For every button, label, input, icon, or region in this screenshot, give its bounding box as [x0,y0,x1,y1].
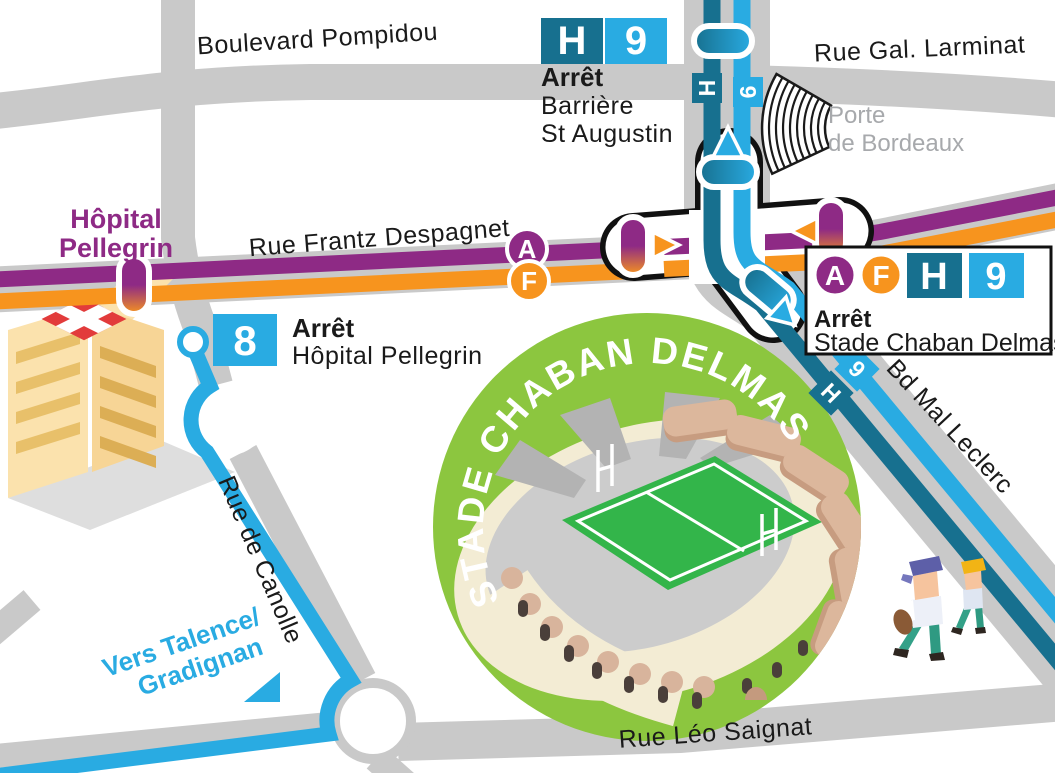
street-boulevard-pompidou: Boulevard Pompidou [196,18,438,61]
stop-name-line1: Barrière [541,92,634,120]
svg-text:H: H [920,256,947,298]
stop-label: Arrêt [292,313,354,343]
stop-marker-pellegrin[interactable] [119,256,149,314]
svg-text:F: F [872,260,889,291]
stop-info-chaban[interactable]: A F H 9 Arrêt Stade Chaban Delmas [806,247,1055,357]
roundabout-large [335,683,411,759]
label-porte-de-bordeaux-2: de Bordeaux [828,130,964,157]
map-svg: STADE CHABAN DELMAS H [0,0,1055,773]
label-hopital-2: Pellegrin [59,233,173,263]
transit-map: STADE CHABAN DELMAS H [0,0,1055,773]
svg-text:F: F [521,266,537,296]
svg-text:H: H [694,80,720,97]
stop-name: Stade Chaban Delmas [814,329,1055,357]
label-hopital-1: Hôpital [70,204,162,234]
line-8-terminus-marker[interactable] [180,329,206,355]
stop-marker-chaban-north[interactable] [699,157,757,187]
svg-text:9: 9 [985,256,1006,298]
stop-marker-chaban-west[interactable] [618,217,648,275]
svg-text:9: 9 [735,86,761,99]
stop-name: Hôpital Pellegrin [292,342,483,370]
svg-text:H: H [558,19,587,63]
pedestrians-illustration [890,556,986,661]
road-boulevard-pompidou [0,82,1055,112]
svg-text:8: 8 [233,317,256,364]
line-f-track-badge[interactable]: F [509,261,549,301]
stop-info-pellegrin[interactable]: 8 Arrêt Hôpital Pellegrin [213,313,483,370]
line-h-track-label: H [692,73,722,103]
line-9-track-label: 9 [733,77,763,107]
road-west-stub [0,600,32,640]
stop-name-line2: St Augustin [541,120,673,148]
cap-icon [909,556,943,576]
direction-sign-talence: Vers Talence/ Gradignan [99,601,280,710]
street-rue-gal-larminat: Rue Gal. Larminat [813,30,1025,67]
svg-text:A: A [825,260,845,291]
stop-marker-barriere[interactable] [694,26,752,56]
label-porte-de-bordeaux-1: Porte [828,102,885,129]
direction-arrow-icon [244,672,280,702]
svg-text:9: 9 [625,19,647,63]
stop-label: Arrêt [541,62,603,92]
pedestrian-adult [890,556,945,661]
